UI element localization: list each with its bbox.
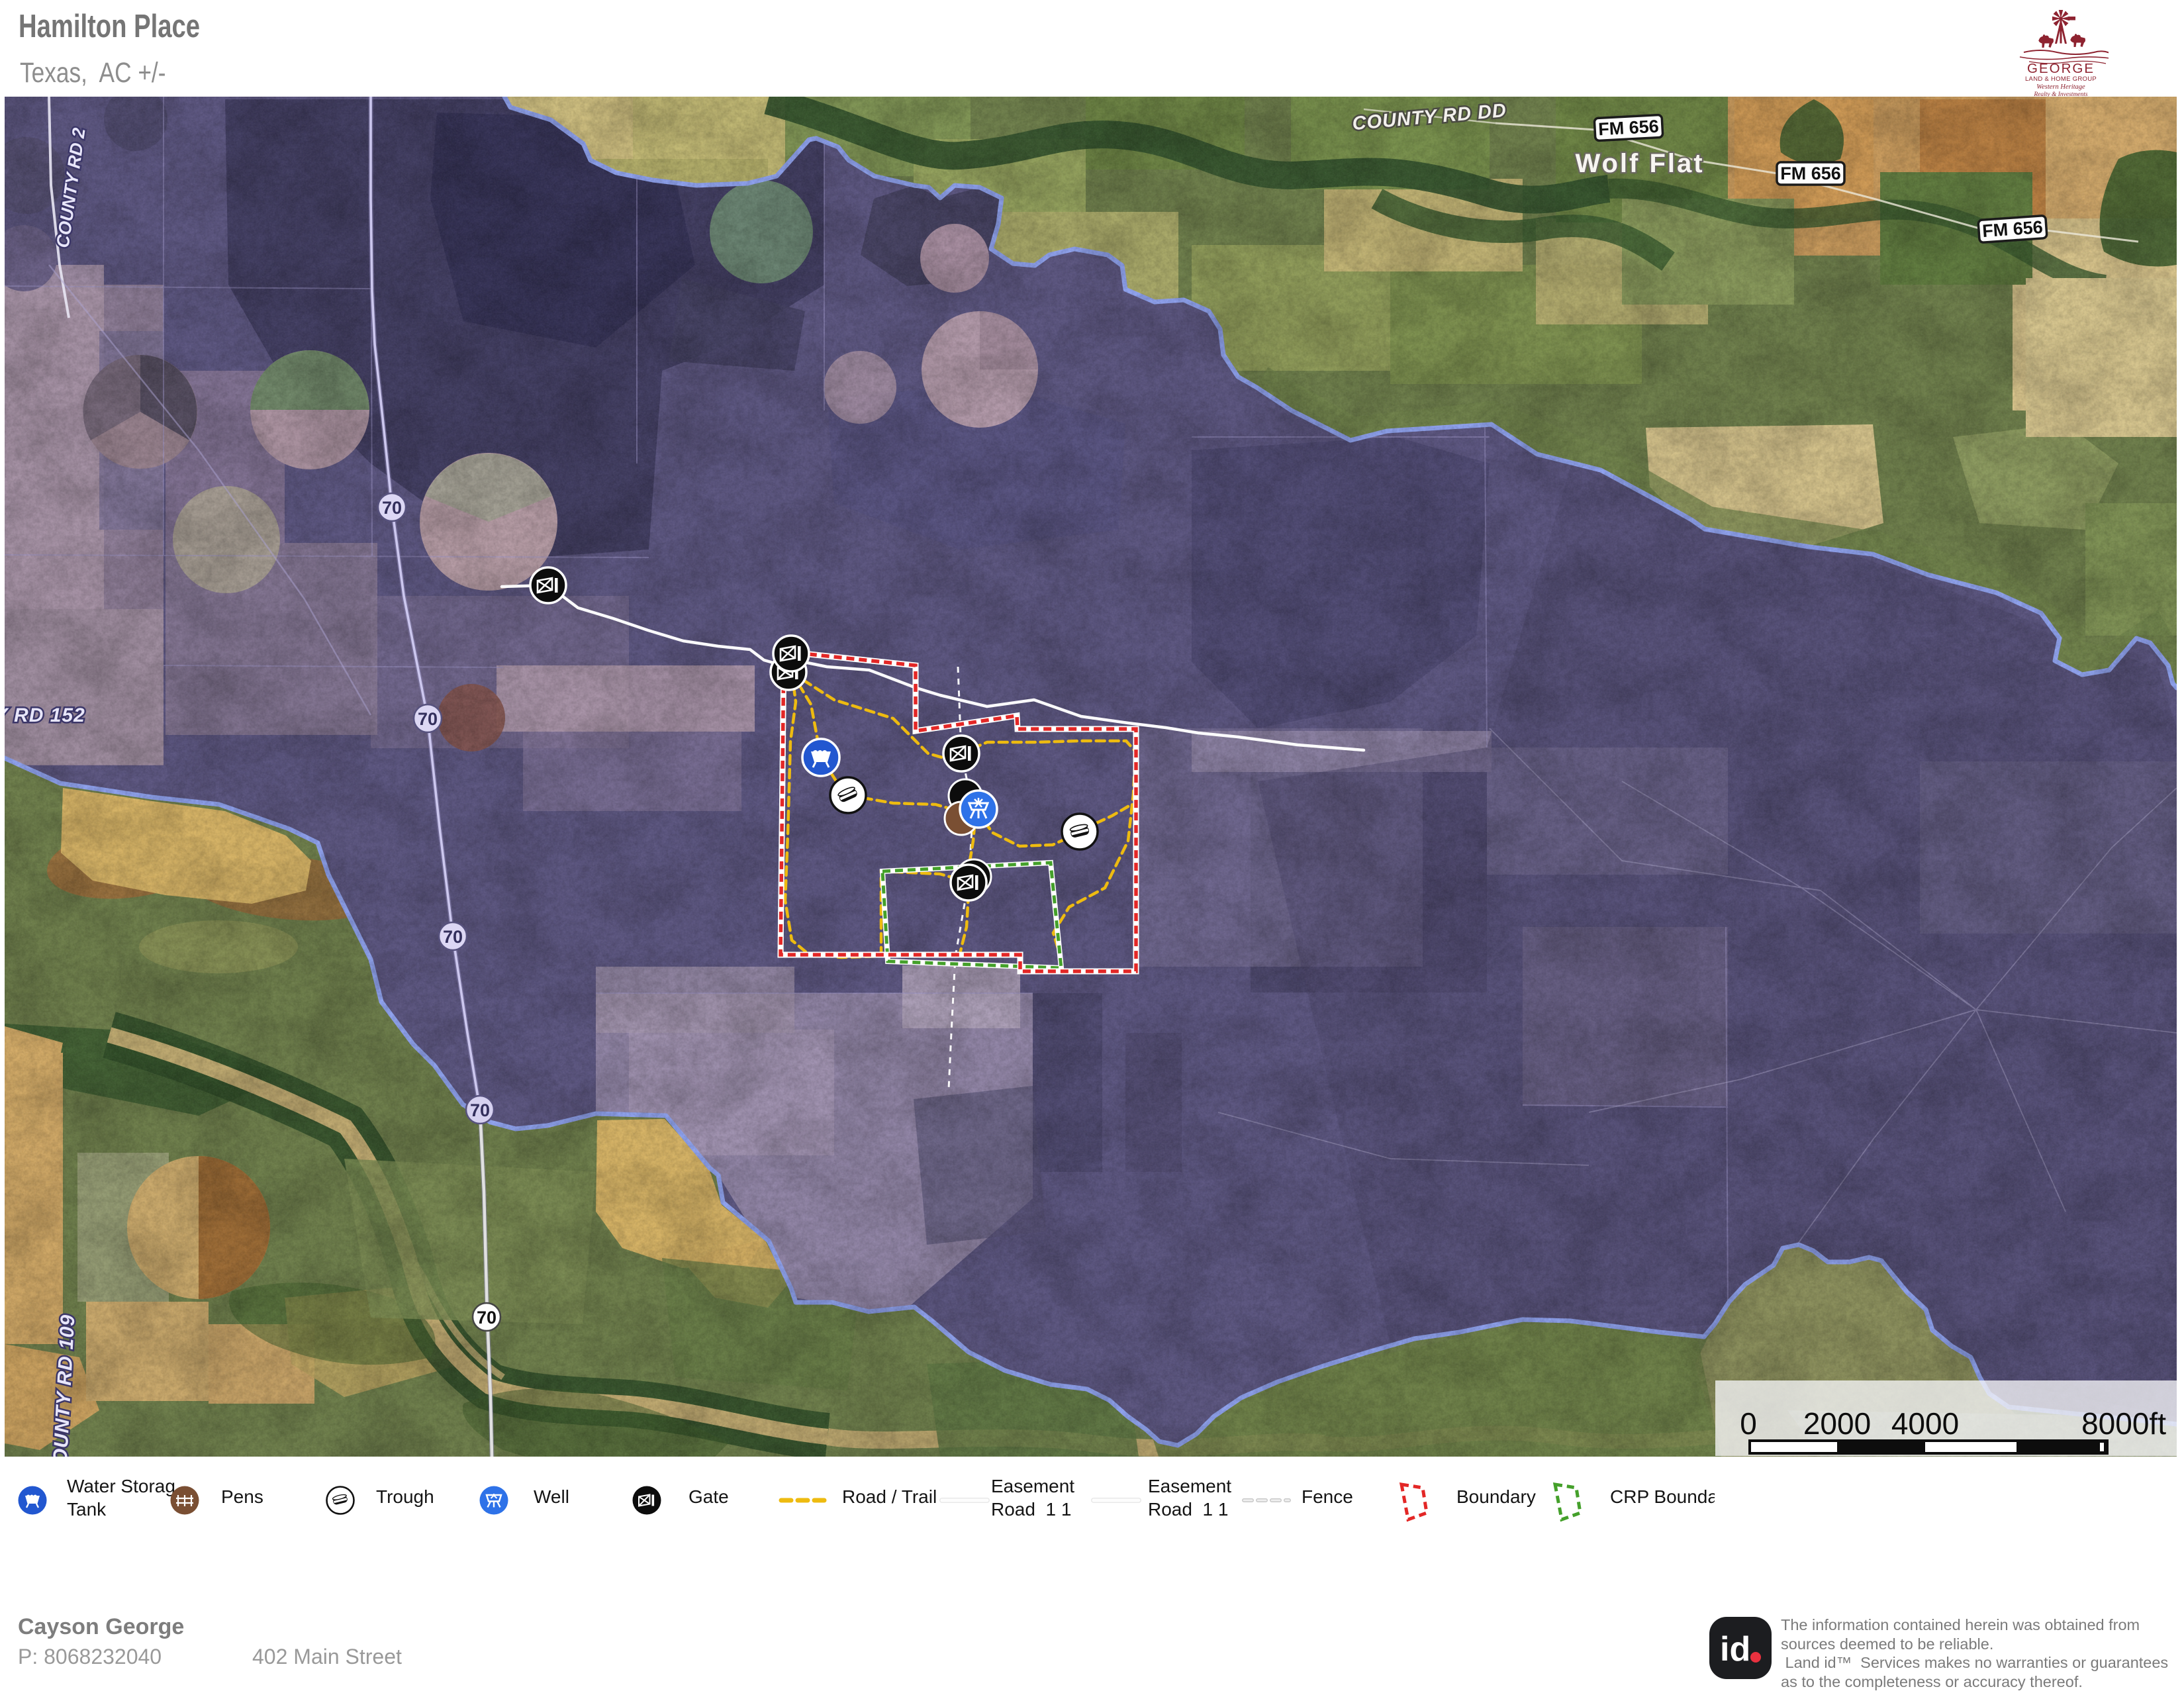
svg-text:id: id: [1720, 1630, 1750, 1668]
svg-text:2000: 2000: [1803, 1406, 1871, 1441]
svg-text:FM 656: FM 656: [1780, 164, 1841, 183]
svg-text:4000: 4000: [1891, 1406, 1959, 1441]
svg-text:Y RD 152: Y RD 152: [0, 704, 85, 726]
svg-text:70: 70: [477, 1308, 497, 1328]
svg-text:70: 70: [470, 1100, 490, 1120]
svg-text:70: 70: [382, 498, 402, 518]
svg-text:FM 656: FM 656: [1598, 117, 1660, 140]
svg-text:FM 656: FM 656: [1981, 217, 2043, 241]
svg-text:70: 70: [418, 709, 438, 729]
svg-text:70: 70: [443, 927, 463, 947]
svg-text:8000ft: 8000ft: [2081, 1406, 2166, 1441]
svg-text:0: 0: [1740, 1406, 1757, 1441]
svg-text:Wolf Flat: Wolf Flat: [1575, 149, 1704, 178]
